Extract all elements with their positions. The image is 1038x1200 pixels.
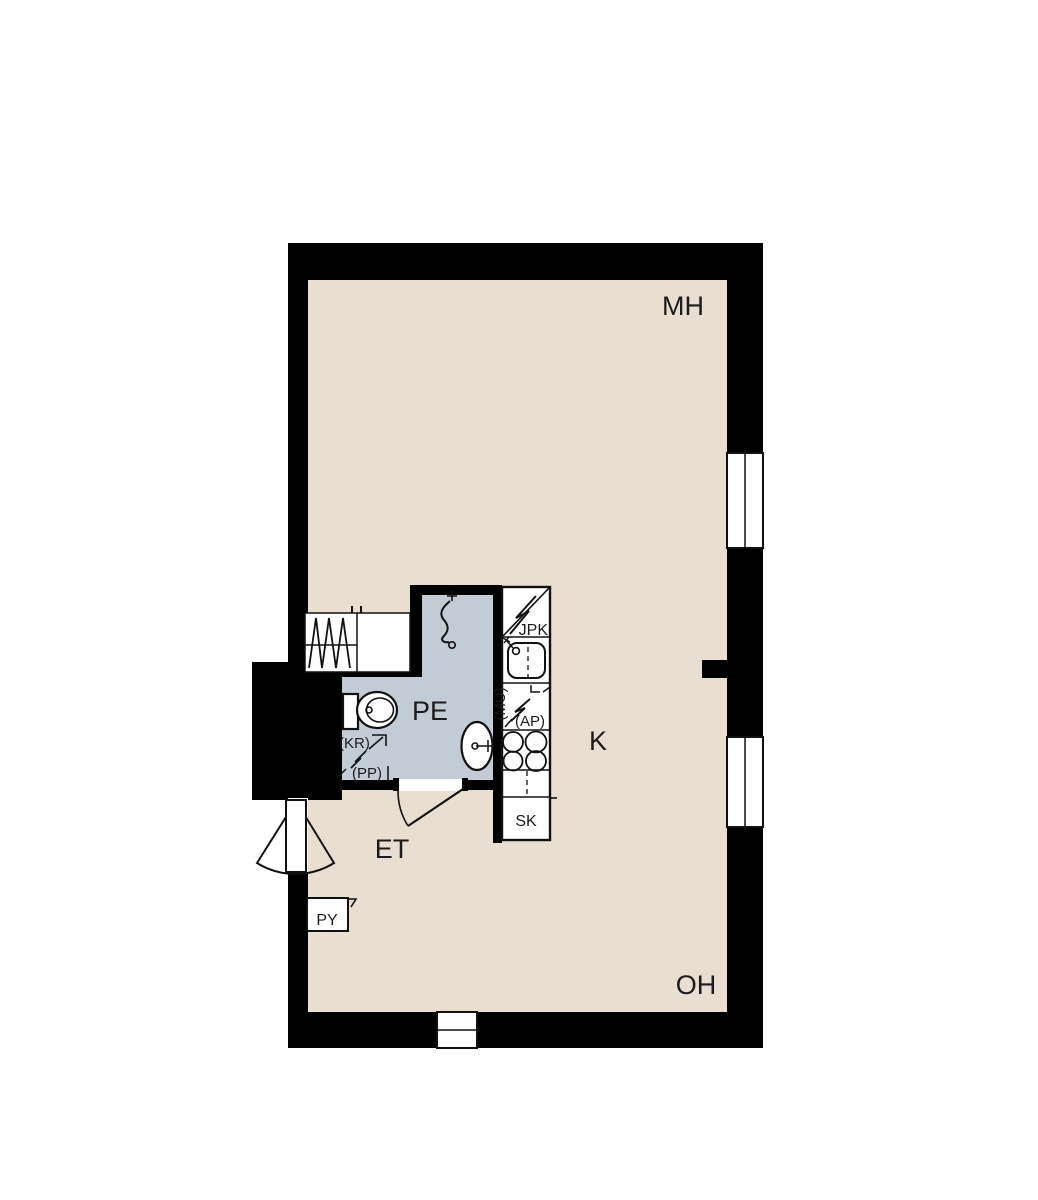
entrance-door-leaf <box>286 800 306 872</box>
window-right-bottom <box>727 737 763 827</box>
label-living-room: OH <box>676 970 717 1000</box>
label-laundry-box: PY <box>316 912 338 929</box>
window-right-top <box>727 453 763 548</box>
label-kitchen: K <box>589 726 607 756</box>
floor-plan-drawing: MH PE K ET OH JPK (MU) (AP) SK (KR) (PP)… <box>0 0 1038 1200</box>
label-washing-machine: (PP) <box>352 765 382 782</box>
label-towel-dryer: (KR) <box>339 735 370 752</box>
bathroom-door-jamb-left <box>393 778 399 791</box>
shaft-block <box>252 662 342 800</box>
wall-stub-east <box>702 660 727 678</box>
toilet <box>343 692 397 729</box>
wet-floor-upper <box>422 595 493 677</box>
label-bedroom: MH <box>662 291 704 321</box>
label-cleaning-closet: SK <box>515 813 537 830</box>
label-hallway: ET <box>375 834 410 864</box>
toilet-bowl <box>357 692 397 728</box>
kitchen-sink <box>503 637 545 682</box>
bathroom-wall-north <box>410 585 502 595</box>
label-microwave: (MU) <box>492 687 509 720</box>
toilet-tank <box>343 694 358 729</box>
label-bathroom: PE <box>412 696 448 726</box>
label-fridge-freezer: JPK <box>519 622 549 639</box>
floor-plan-page: MH PE K ET OH JPK (MU) (AP) SK (KR) (PP)… <box>0 0 1038 1200</box>
wardrobe-closet <box>305 606 410 672</box>
washbasin <box>462 722 493 770</box>
window-bottom <box>437 1012 477 1048</box>
bathroom-door-opening <box>398 779 463 791</box>
label-dishwasher: (AP) <box>515 713 545 730</box>
